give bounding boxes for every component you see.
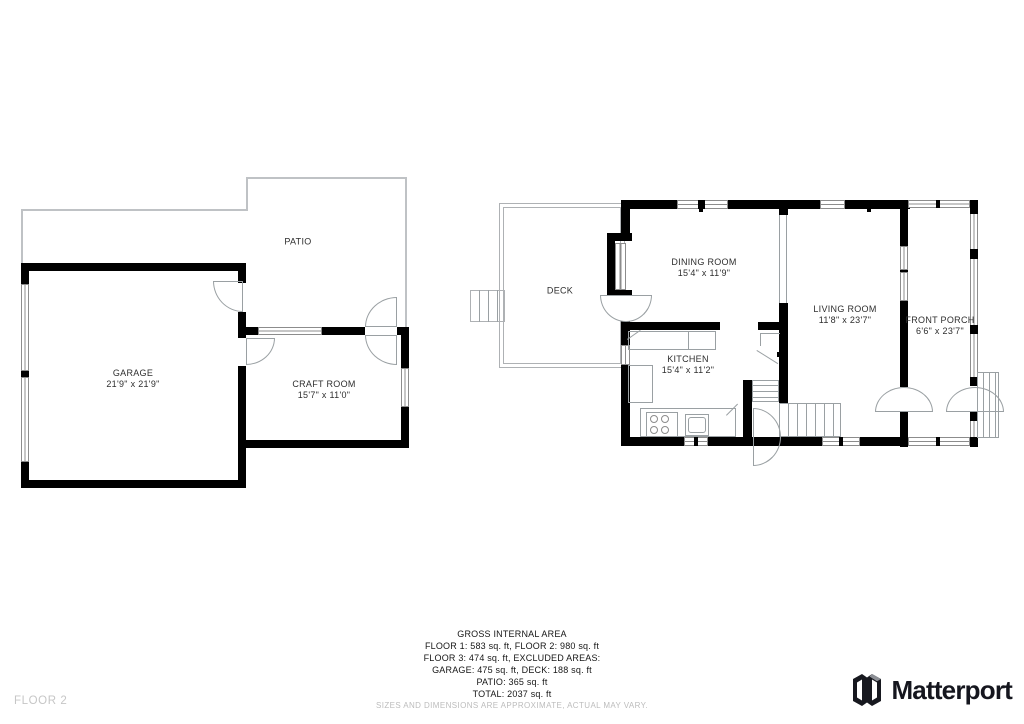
stair-tread	[806, 403, 807, 437]
room-dims: 15'4" x 11'9"	[671, 268, 736, 279]
door-arc	[875, 387, 933, 412]
room-name: DECK	[547, 286, 573, 296]
room-name: DINING ROOM	[671, 257, 736, 268]
wall-tick	[694, 437, 698, 446]
garage-wall-right	[238, 366, 246, 488]
bay-wall	[607, 233, 615, 298]
window	[820, 200, 845, 209]
stair-tread	[833, 403, 834, 437]
garage-wall-top	[21, 263, 246, 271]
window	[900, 272, 908, 301]
wall-tick	[186, 481, 191, 485]
room-name: FRONT PORCH	[905, 315, 974, 326]
patio-outline	[246, 177, 407, 179]
door-arc	[365, 335, 397, 365]
window	[21, 284, 29, 371]
room-label-deck: DECK	[547, 286, 573, 297]
stair-tread	[497, 290, 498, 322]
room-dims: 6'6" x 23'7"	[905, 326, 974, 337]
matterport-logo: Matterport	[851, 672, 1012, 708]
wall-tick	[839, 437, 843, 446]
sliding-door	[615, 243, 626, 290]
door-leaf	[756, 350, 778, 364]
summary-line: FLOOR 3: 474 sq. ft, EXCLUDED AREAS:	[0, 652, 1024, 664]
sink-basin-icon	[688, 417, 706, 433]
kitchen-wall-right	[743, 380, 752, 437]
room-name: GARAGE	[106, 368, 159, 379]
stair-tread	[752, 391, 779, 392]
counter-edge	[735, 412, 736, 437]
room-name: LIVING ROOM	[813, 304, 876, 315]
room-label-front-porch: FRONT PORCH 6'6" x 23'7"	[905, 315, 974, 337]
wall-tick	[320, 442, 325, 446]
garage-wall-right	[238, 263, 246, 283]
stove-burner-icon	[661, 415, 669, 423]
room-dims: 11'8" x 23'7"	[813, 315, 876, 326]
stair-tread	[488, 290, 489, 322]
stair-tread	[479, 290, 480, 322]
door-leaf	[760, 333, 780, 334]
stove-burner-icon	[661, 426, 669, 434]
stair-tread	[752, 385, 779, 386]
patio-outline	[246, 177, 248, 211]
stair-tread	[752, 397, 779, 398]
patio-outline	[405, 177, 407, 329]
matterport-m-icon	[851, 672, 883, 708]
room-label-craft-room: CRAFT ROOM 15'7" x 11'0"	[292, 379, 355, 401]
porch-post	[970, 200, 978, 214]
window	[21, 377, 29, 462]
room-label-living-room: LIVING ROOM 11'8" x 23'7"	[813, 304, 876, 326]
patio-outline	[21, 209, 23, 265]
wall-tick	[699, 209, 703, 212]
wall-tick	[867, 209, 871, 212]
room-label-kitchen: KITCHEN 15'4" x 11'2"	[662, 354, 715, 376]
wall-tick	[936, 200, 940, 208]
room-dims: 21'9" x 21'9"	[106, 379, 159, 390]
wall-tick	[936, 437, 940, 446]
opening-edge	[786, 215, 787, 303]
door-arc	[213, 281, 243, 312]
summary-title: GROSS INTERNAL AREA	[0, 628, 1024, 640]
wall-tick	[186, 267, 191, 271]
stair-tread	[815, 403, 816, 437]
porch-post	[970, 437, 978, 447]
room-dims: 15'7" x 11'0"	[292, 390, 355, 401]
kitchen-wall-top	[621, 322, 720, 330]
room-label-dining-room: DINING ROOM 15'4" x 11'9"	[671, 257, 736, 279]
door-arc	[365, 297, 397, 327]
counter-divider	[688, 331, 689, 350]
room-name: PATIO	[284, 237, 311, 247]
patio-outline	[21, 209, 248, 211]
garage-wall-bottom	[21, 480, 246, 488]
door-leaf	[760, 333, 761, 346]
stove-burner-icon	[650, 426, 658, 434]
kitchen-counter	[628, 331, 716, 350]
door-arc	[246, 338, 275, 365]
room-name: CRAFT ROOM	[292, 379, 355, 390]
room-label-garage: GARAGE 21'9" x 21'9"	[106, 368, 159, 390]
door-arc	[753, 408, 781, 466]
porch-post	[970, 249, 978, 259]
stove-burner-icon	[650, 415, 658, 423]
summary-line: FLOOR 1: 583 sq. ft, FLOOR 2: 980 sq. ft	[0, 640, 1024, 652]
room-name: KITCHEN	[662, 354, 715, 365]
house-wall-top	[623, 200, 910, 209]
room-dims: 15'4" x 11'2"	[662, 365, 715, 376]
dining-living-divider	[779, 200, 788, 215]
window-mullion	[698, 200, 705, 209]
wall-tick	[777, 352, 782, 357]
room-label-patio: PATIO	[284, 237, 311, 248]
dining-wall-left	[621, 200, 630, 236]
floor-label: FLOOR 2	[14, 695, 67, 707]
fridge	[628, 365, 653, 403]
window	[401, 368, 409, 407]
stair-tread	[788, 403, 789, 437]
opening-edge	[779, 215, 780, 303]
floorplan-canvas: PATIO GARAGE 21'9" x 21'9" CRAFT ROOM 15…	[0, 0, 1024, 724]
window	[900, 246, 908, 270]
matterport-wordmark: Matterport	[891, 675, 1012, 706]
stair-tread	[797, 403, 798, 437]
window	[258, 327, 322, 335]
stair-tread	[824, 403, 825, 437]
